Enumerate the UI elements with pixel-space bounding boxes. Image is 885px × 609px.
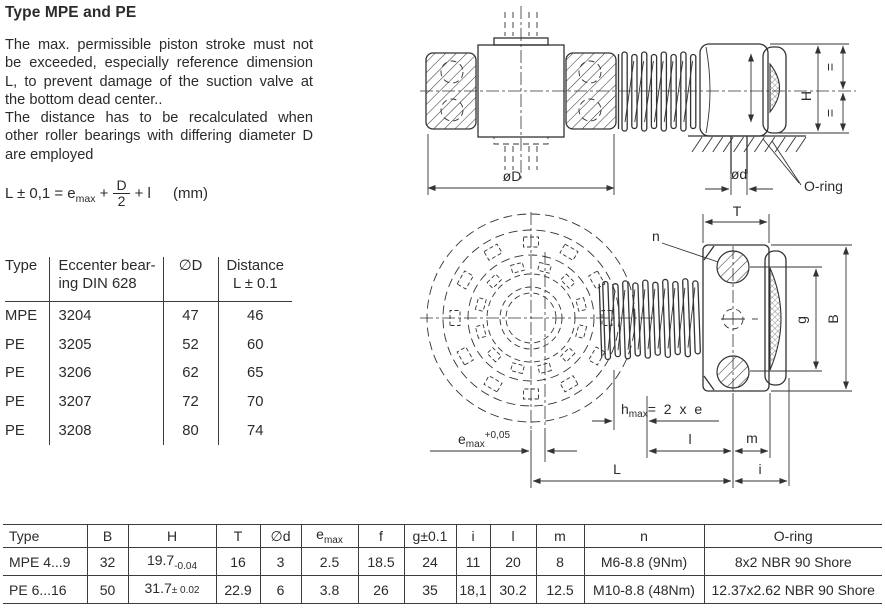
cell-distance: 46 [218, 302, 292, 331]
cell-B: 32 [87, 548, 128, 576]
table-row: PE 3206 62 65 [5, 359, 292, 388]
oring-section [770, 64, 780, 112]
piston-face-curve [706, 47, 710, 133]
dimension-table: Type B H T ∅d emax f g±0.1 i l m n O-rin… [3, 524, 882, 604]
cell-g: 24 [404, 548, 456, 576]
cell-H: 31.7± 0.02 [128, 576, 216, 604]
dim-label-outer-diameter: øD [503, 168, 522, 184]
cell-type: PE [5, 416, 49, 445]
column-header-H: H [128, 525, 216, 548]
bearing-table: Type Eccenter bear- ing DIN 628 ∅D Dista… [5, 257, 292, 445]
cell-d: 3 [260, 548, 301, 576]
cell-type: PE [5, 388, 49, 417]
cell-distance: 74 [218, 416, 292, 445]
formula-tail: + l [135, 185, 151, 202]
header-line: Distance [219, 257, 293, 275]
cell-diameter: 80 [163, 416, 218, 445]
dim-label-g: g [793, 316, 809, 324]
paragraph-line: are employed [5, 146, 313, 164]
drawing-side-view: øD H = = ød [420, 6, 856, 195]
cell-oring: 12.37x2.62 NBR 90 Shore [704, 576, 882, 604]
cell-type: PE [5, 359, 49, 388]
cell-emax: 2.5 [301, 548, 358, 576]
cell-bearing: 3204 [49, 302, 163, 331]
column-header-n: n [584, 525, 704, 548]
formula-subscript: max [76, 193, 96, 205]
dim-label-H: H [798, 91, 814, 101]
dim-label-i: i [758, 461, 761, 477]
cell-n: M6-8.8 (9Nm) [584, 548, 704, 576]
dim-label-T: T [733, 203, 742, 219]
cell-type: PE [5, 331, 49, 360]
technical-drawings: øD H = = ød [418, 0, 885, 512]
oring-front [770, 268, 781, 370]
page-background: Type MPE and PE The max. permissible pis… [0, 0, 885, 609]
cell-bearing: 3205 [49, 331, 163, 360]
dim-label-L: L [613, 461, 621, 477]
table-row: MPE 3204 47 46 [5, 302, 292, 331]
cell-oring: 8x2 NBR 90 Shore [704, 548, 882, 576]
paragraph-line: the bottom dead center.. [5, 91, 313, 109]
header-line: Eccenter bear- [59, 257, 163, 275]
cell-f: 18.5 [358, 548, 404, 576]
column-header-f: f [358, 525, 404, 548]
header-line: L ± 0.1 [219, 275, 293, 293]
paragraph-line: The distance has to be recalculated when [5, 109, 313, 127]
cell-i: 11 [456, 548, 490, 576]
column-header-type: Type [3, 525, 87, 548]
column-header-eccenter-bearing: Eccenter bear- ing DIN 628 [49, 257, 163, 302]
dim-label-equal-bottom: = [822, 109, 838, 117]
cell-diameter: 72 [163, 388, 218, 417]
datasheet-page: { "title": "Type MPE and PE", "paragraph… [0, 0, 885, 609]
cell-distance: 65 [218, 359, 292, 388]
spring [619, 52, 696, 131]
column-header-distance: Distance L ± 0.1 [218, 257, 292, 302]
table-row: PE 6...16 50 31.7± 0.02 22.9 6 3.8 26 35… [3, 576, 882, 604]
column-header-d: ∅d [260, 525, 301, 548]
fraction-numerator: D [113, 178, 129, 194]
screw-callout-label: n [652, 228, 660, 244]
cell-T: 22.9 [216, 576, 260, 604]
cell-l: 30.2 [490, 576, 536, 604]
cell-g: 35 [404, 576, 456, 604]
cell-distance: 70 [218, 388, 292, 417]
cell-B: 50 [87, 576, 128, 604]
drawing-front-view: T n g B hmax= 2 x e emax+0,05 [420, 203, 852, 488]
oring-callout-label: O-ring [804, 178, 843, 194]
dim-label-small-diameter: ød [731, 166, 747, 182]
column-header-type: Type [5, 257, 49, 302]
dim-label-l: l [688, 431, 691, 447]
column-header-diameter-D: ∅D [163, 257, 218, 302]
header-line: ing DIN 628 [59, 275, 163, 293]
column-header-m: m [536, 525, 584, 548]
cell-H: 19.7-0.04 [128, 548, 216, 576]
cell-type: MPE 4...9 [3, 548, 87, 576]
cell-diameter: 47 [163, 302, 218, 331]
page-title: Type MPE and PE [5, 4, 136, 22]
column-header-l: l [490, 525, 536, 548]
cell-m: 12.5 [536, 576, 584, 604]
table-row: PE 3207 72 70 [5, 388, 292, 417]
dim-label-hmax: hmax= 2 x e [621, 401, 704, 420]
cell-f: 26 [358, 576, 404, 604]
column-header-emax: emax [301, 525, 358, 548]
dim-label-emax: emax+0,05 [458, 430, 510, 450]
cell-bearing: 3208 [49, 416, 163, 445]
formula-unit: (mm) [173, 185, 208, 202]
column-header-B: B [87, 525, 128, 548]
cell-diameter: 62 [163, 359, 218, 388]
bearing-outer-ring-right [566, 53, 616, 129]
cell-n: M10-8.8 (48Nm) [584, 576, 704, 604]
dim-label-equal-top: = [822, 63, 838, 71]
column-header-oring: O-ring [704, 525, 882, 548]
formula-operator: + [100, 185, 109, 202]
dim-label-B: B [825, 314, 841, 323]
cell-bearing: 3206 [49, 359, 163, 388]
column-header-g: g±0.1 [404, 525, 456, 548]
paragraph-line: other roller bearings with differing dia… [5, 127, 313, 145]
description-paragraph: The max. permissible piston stroke must … [5, 36, 313, 164]
cell-l: 20 [490, 548, 536, 576]
stroke-formula: L ± 0,1 = emax +D2+ l (mm) [5, 178, 208, 210]
ground-hatching [692, 137, 806, 152]
column-header-T: T [216, 525, 260, 548]
fraction-denominator: 2 [113, 194, 129, 209]
cell-d: 6 [260, 576, 301, 604]
cell-distance: 60 [218, 331, 292, 360]
cell-m: 8 [536, 548, 584, 576]
dim-label-m: m [746, 430, 758, 446]
table-row: MPE 4...9 32 19.7-0.04 16 3 2.5 18.5 24 … [3, 548, 882, 576]
dimension-table-header-row: Type B H T ∅d emax f g±0.1 i l m n O-rin… [3, 525, 882, 548]
paragraph-line: be exceeded, especially reference dimens… [5, 54, 313, 72]
cell-type: PE 6...16 [3, 576, 87, 604]
table-row: PE 3208 80 74 [5, 416, 292, 445]
cell-T: 16 [216, 548, 260, 576]
cell-diameter: 52 [163, 331, 218, 360]
paragraph-line: The max. permissible piston stroke must … [5, 36, 313, 54]
cell-emax: 3.8 [301, 576, 358, 604]
cell-i: 18,1 [456, 576, 490, 604]
formula-lead: L ± 0,1 = e [5, 185, 76, 202]
column-header-i: i [456, 525, 490, 548]
table-row: PE 3205 52 60 [5, 331, 292, 360]
paragraph-line: L, to prevent damage of the suction valv… [5, 73, 313, 91]
bearing-table-header-row: Type Eccenter bear- ing DIN 628 ∅D Dista… [5, 257, 292, 302]
cell-bearing: 3207 [49, 388, 163, 417]
bearing-outer-ring-left [426, 53, 476, 129]
formula-fraction: D2 [113, 178, 129, 210]
cell-type: MPE [5, 302, 49, 331]
